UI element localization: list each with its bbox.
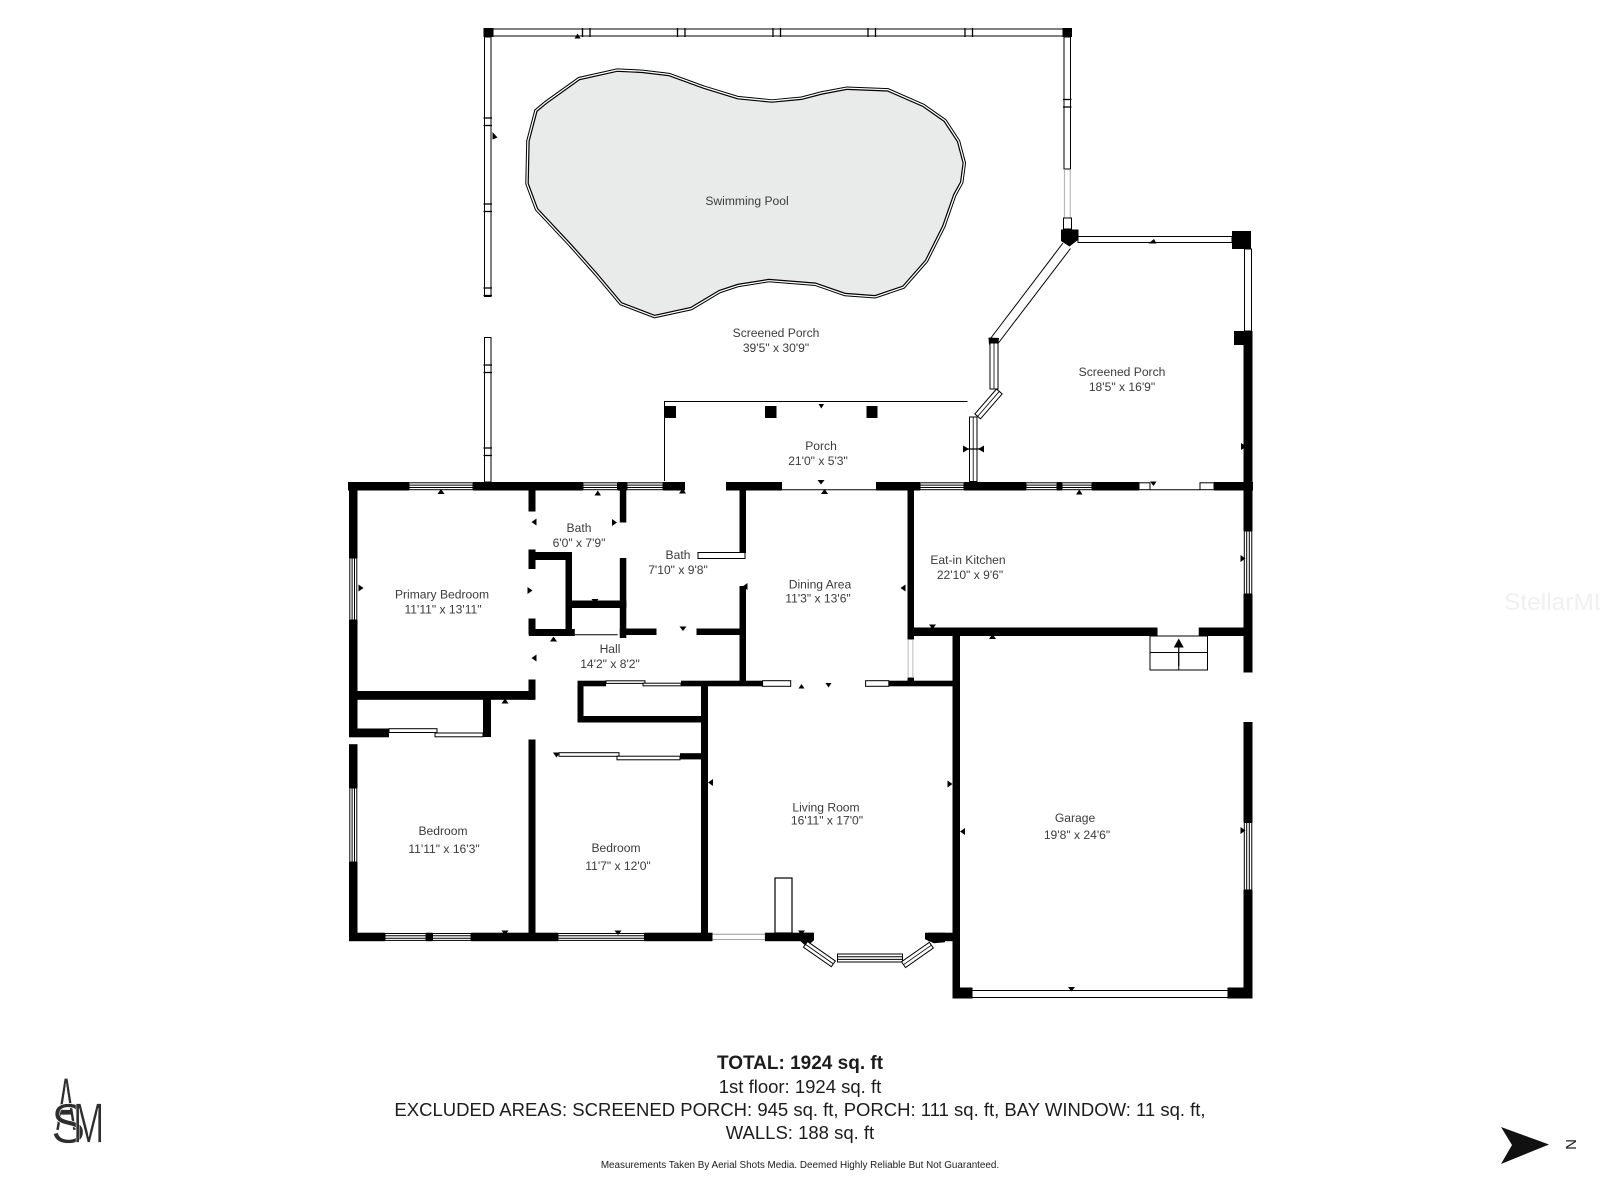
svg-text:Garage: Garage <box>1055 811 1096 825</box>
svg-text:TOTAL: 1924 sq. ft: TOTAL: 1924 sq. ft <box>717 1053 884 1074</box>
svg-text:WALLS: 188 sq. ft: WALLS: 188 sq. ft <box>726 1122 874 1143</box>
svg-text:18'5" x 16'9": 18'5" x 16'9" <box>1089 380 1155 394</box>
svg-text:39'5" x 30'9": 39'5" x 30'9" <box>743 341 809 355</box>
svg-text:Screened Porch: Screened Porch <box>733 326 820 340</box>
svg-text:21'0" x 5'3": 21'0" x 5'3" <box>788 454 848 468</box>
svg-text:Swimming Pool: Swimming Pool <box>705 194 788 208</box>
svg-text:Primary Bedroom: Primary Bedroom <box>395 588 489 602</box>
svg-text:11'3" x 13'6": 11'3" x 13'6" <box>785 592 850 606</box>
svg-text:7'10" x 9'8": 7'10" x 9'8" <box>648 563 708 577</box>
svg-text:6'0" x 7'9": 6'0" x 7'9" <box>553 536 606 550</box>
svg-text:Porch: Porch <box>805 439 837 453</box>
svg-text:N: N <box>1562 1139 1579 1150</box>
svg-text:EXCLUDED AREAS: SCREENED PORCH: EXCLUDED AREAS: SCREENED PORCH: 945 sq. … <box>394 1099 1205 1120</box>
svg-text:StellarMLS: StellarMLS <box>1504 589 1600 616</box>
svg-text:Measurements Taken By Aerial S: Measurements Taken By Aerial Shots Media… <box>601 1160 999 1171</box>
svg-text:Dining Area: Dining Area <box>789 578 852 592</box>
svg-text:Bedroom: Bedroom <box>591 841 640 855</box>
svg-text:Eat-in Kitchen: Eat-in Kitchen <box>930 553 1005 567</box>
svg-text:11'11" x 13'11": 11'11" x 13'11" <box>404 603 481 617</box>
svg-text:Bedroom: Bedroom <box>418 824 467 838</box>
svg-text:M: M <box>73 1092 104 1156</box>
svg-text:11'7" x 12'0": 11'7" x 12'0" <box>585 859 650 873</box>
svg-text:22'10" x 9'6": 22'10" x 9'6" <box>937 568 1003 582</box>
svg-text:Hall: Hall <box>600 642 621 656</box>
svg-text:Bath: Bath <box>666 548 691 562</box>
svg-text:1st floor: 1924 sq. ft: 1st floor: 1924 sq. ft <box>719 1076 881 1097</box>
svg-text:Screened Porch: Screened Porch <box>1079 365 1166 379</box>
svg-text:19'8" x 24'6": 19'8" x 24'6" <box>1044 828 1110 842</box>
svg-text:Living Room: Living Room <box>792 801 859 815</box>
svg-text:Bath: Bath <box>567 521 592 535</box>
svg-text:16'11" x 17'0": 16'11" x 17'0" <box>791 814 863 828</box>
svg-text:11'11" x 16'3": 11'11" x 16'3" <box>408 842 479 856</box>
svg-text:14'2" x 8'2": 14'2" x 8'2" <box>580 657 640 671</box>
